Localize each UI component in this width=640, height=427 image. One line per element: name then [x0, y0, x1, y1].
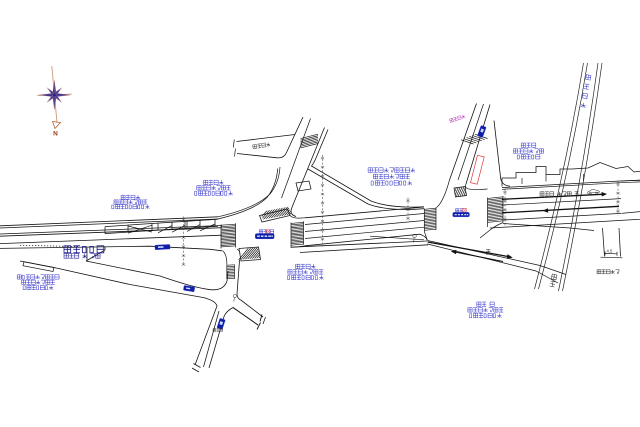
svg-text:4.5: 4.5 — [607, 249, 613, 254]
svg-text:N: N — [53, 131, 58, 138]
